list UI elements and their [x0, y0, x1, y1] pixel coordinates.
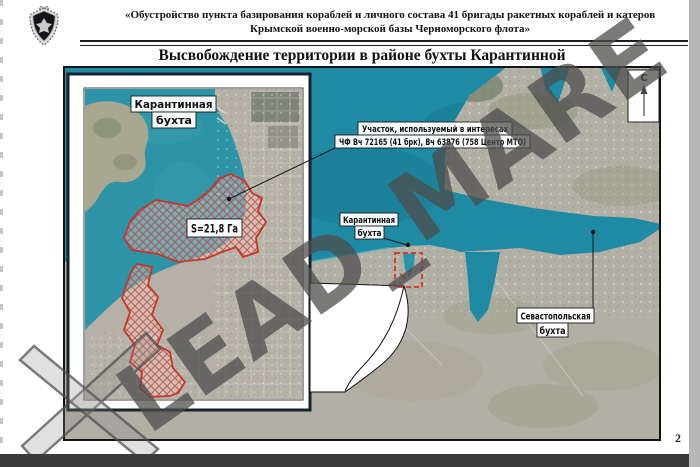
- header-line1: «Обустройство пункта базирования корабле…: [92, 8, 688, 22]
- plot-usage-line1: Участок, используемый в интересах: [362, 125, 508, 135]
- plot-usage-line2: ЧФ Вч 72165 (41 брк), Вч 63876 (758 Цент…: [339, 137, 526, 148]
- main-map: Карантинная бухта S=21,8 Га: [63, 66, 661, 441]
- document-page: «Обустройство пункта базирования корабле…: [0, 0, 700, 467]
- scan-edge-right: [689, 0, 700, 467]
- svg-text:бухта: бухта: [540, 326, 566, 337]
- page-title: Высвобождение территории в районе бухты …: [63, 47, 661, 65]
- satellite-map-figure: Карантинная бухта S=21,8 Га: [63, 66, 661, 441]
- page-left-perforation: [0, 0, 3, 454]
- svg-text:Карантинная: Карантинная: [343, 216, 395, 226]
- plot-usage-label: Участок, используемый в интересах ЧФ Вч …: [335, 122, 530, 148]
- svg-text:бухта: бухта: [358, 228, 382, 239]
- header-divider: [80, 40, 688, 46]
- svg-text:Севастопольская: Севастопольская: [521, 312, 591, 323]
- page-number: 2: [668, 431, 688, 446]
- header-line2: Крымской военно-морской базы Черноморско…: [92, 22, 688, 36]
- naval-emblem-icon: [28, 5, 60, 47]
- inset-bay-name-line1: Карантинная: [135, 98, 213, 111]
- inset-bay-name-line2: бухта: [156, 114, 192, 127]
- scan-edge-bottom: [0, 454, 689, 467]
- document-header: «Обустройство пункта базирования корабле…: [92, 8, 688, 36]
- inset-map: Карантинная бухта S=21,8 Га: [68, 74, 310, 410]
- north-label: С: [640, 73, 647, 84]
- svg-text:S=21,8 Га: S=21,8 Га: [191, 222, 238, 236]
- compass: С: [628, 70, 659, 122]
- area-label: S=21,8 Га: [187, 219, 242, 237]
